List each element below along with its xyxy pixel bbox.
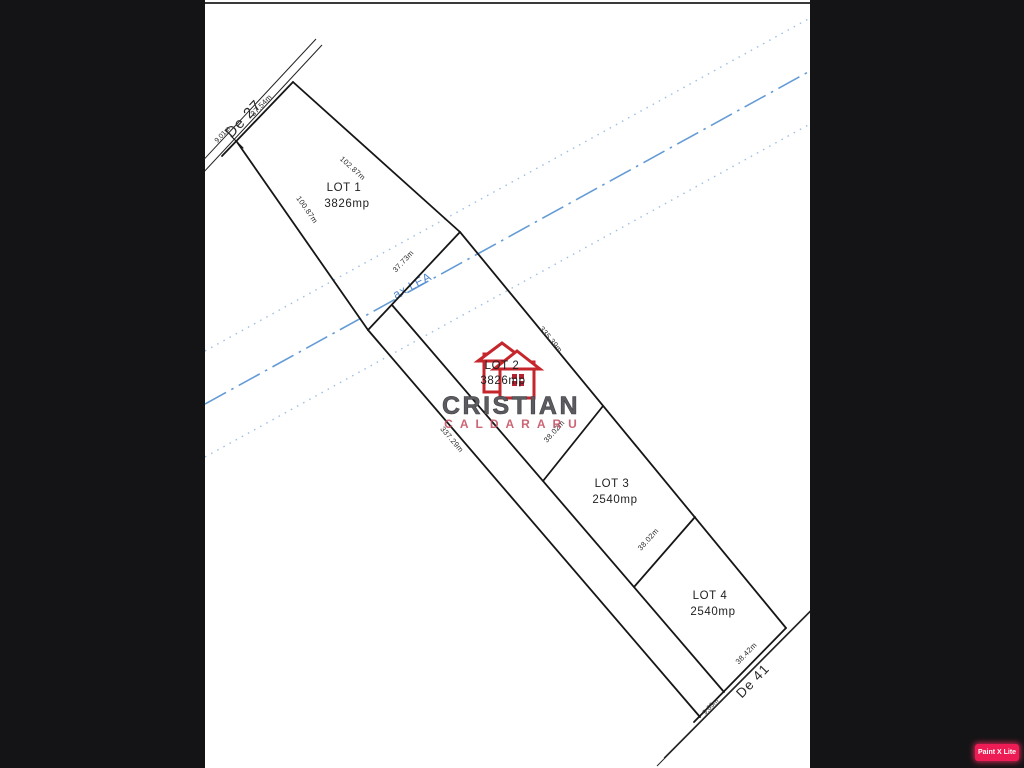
lot4-area: 2540mp — [690, 606, 735, 618]
dim-lot1-sw-side: 100.87m — [294, 194, 319, 225]
road-de41-label: De 41 — [733, 661, 772, 701]
dim-de41-frontage: 38.42m — [734, 640, 759, 666]
lot3-se-edge — [634, 517, 695, 587]
dim-lot3-se-side: 38.02m — [636, 526, 661, 552]
lot3-name: LOT 3 — [595, 478, 630, 490]
dim-de41-offset: 9.63m — [702, 697, 721, 716]
lea-corridor-upper-dotted-line — [205, 18, 810, 351]
lot1-ne-edge — [293, 82, 460, 232]
watermark-name-secondary: CALDARARU — [444, 417, 584, 431]
lot3-area: 2540mp — [592, 494, 637, 506]
lot1-name: LOT 1 — [327, 182, 362, 194]
paint-x-lite-badge: Paint X Lite — [975, 744, 1019, 761]
plan-sheet: ax LEA — [205, 0, 810, 768]
dim-lot1-bottom: 37.73m — [391, 248, 416, 274]
dim-lot1-ne-side: 102.87m — [338, 154, 367, 182]
lot2-name: LOT 2 — [485, 360, 520, 372]
lot4-name: LOT 4 — [693, 590, 728, 602]
image-viewer-canvas: ax LEA — [0, 0, 1024, 768]
paint-x-lite-badge-label: Paint X Lite — [978, 749, 1016, 756]
lot1-bottom-edge — [368, 232, 460, 330]
dim-strip-ne-side: 335.39m — [538, 324, 565, 354]
road-de41-inner-line — [664, 607, 810, 758]
lot2-area: 3826mp — [480, 375, 525, 387]
lot2-ne-edge — [392, 305, 724, 692]
lot1-area: 3826mp — [324, 198, 369, 210]
cadastral-plan-drawing: ax LEA — [205, 0, 810, 768]
watermark-name-primary: CRISTIAN — [442, 392, 580, 420]
